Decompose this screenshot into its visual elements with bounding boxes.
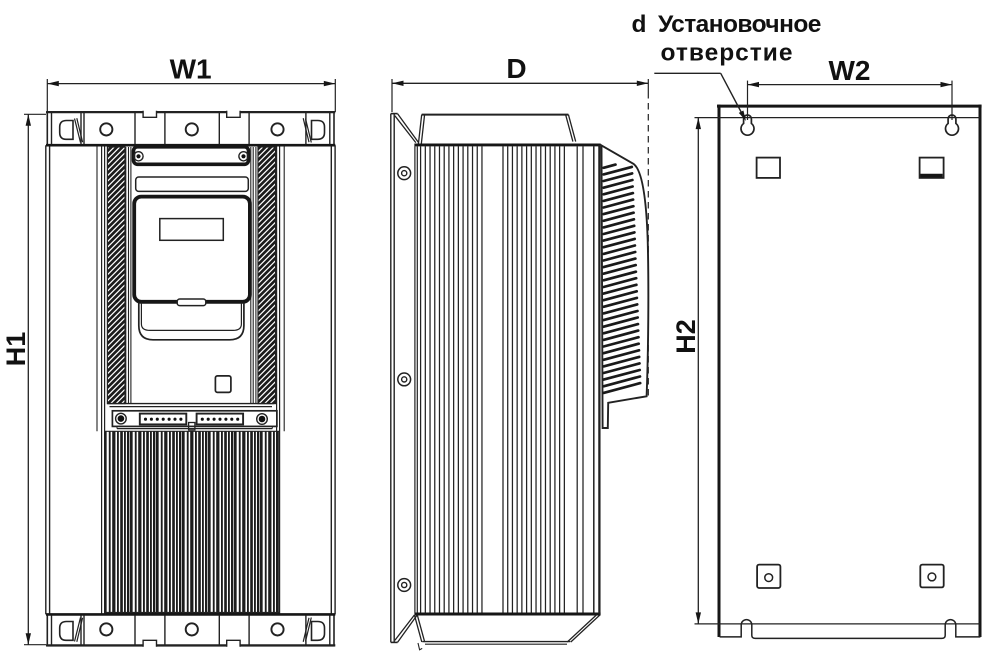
svg-text:W2: W2 [829, 55, 871, 86]
svg-text:W1: W1 [170, 54, 212, 85]
svg-text:отверстие: отверстие [661, 39, 794, 66]
svg-text:D: D [506, 53, 526, 84]
svg-text:d: d [632, 11, 647, 38]
svg-text:H1: H1 [1, 332, 31, 367]
svg-text:H2: H2 [671, 319, 701, 354]
svg-text:Установочное: Установочное [658, 11, 821, 38]
